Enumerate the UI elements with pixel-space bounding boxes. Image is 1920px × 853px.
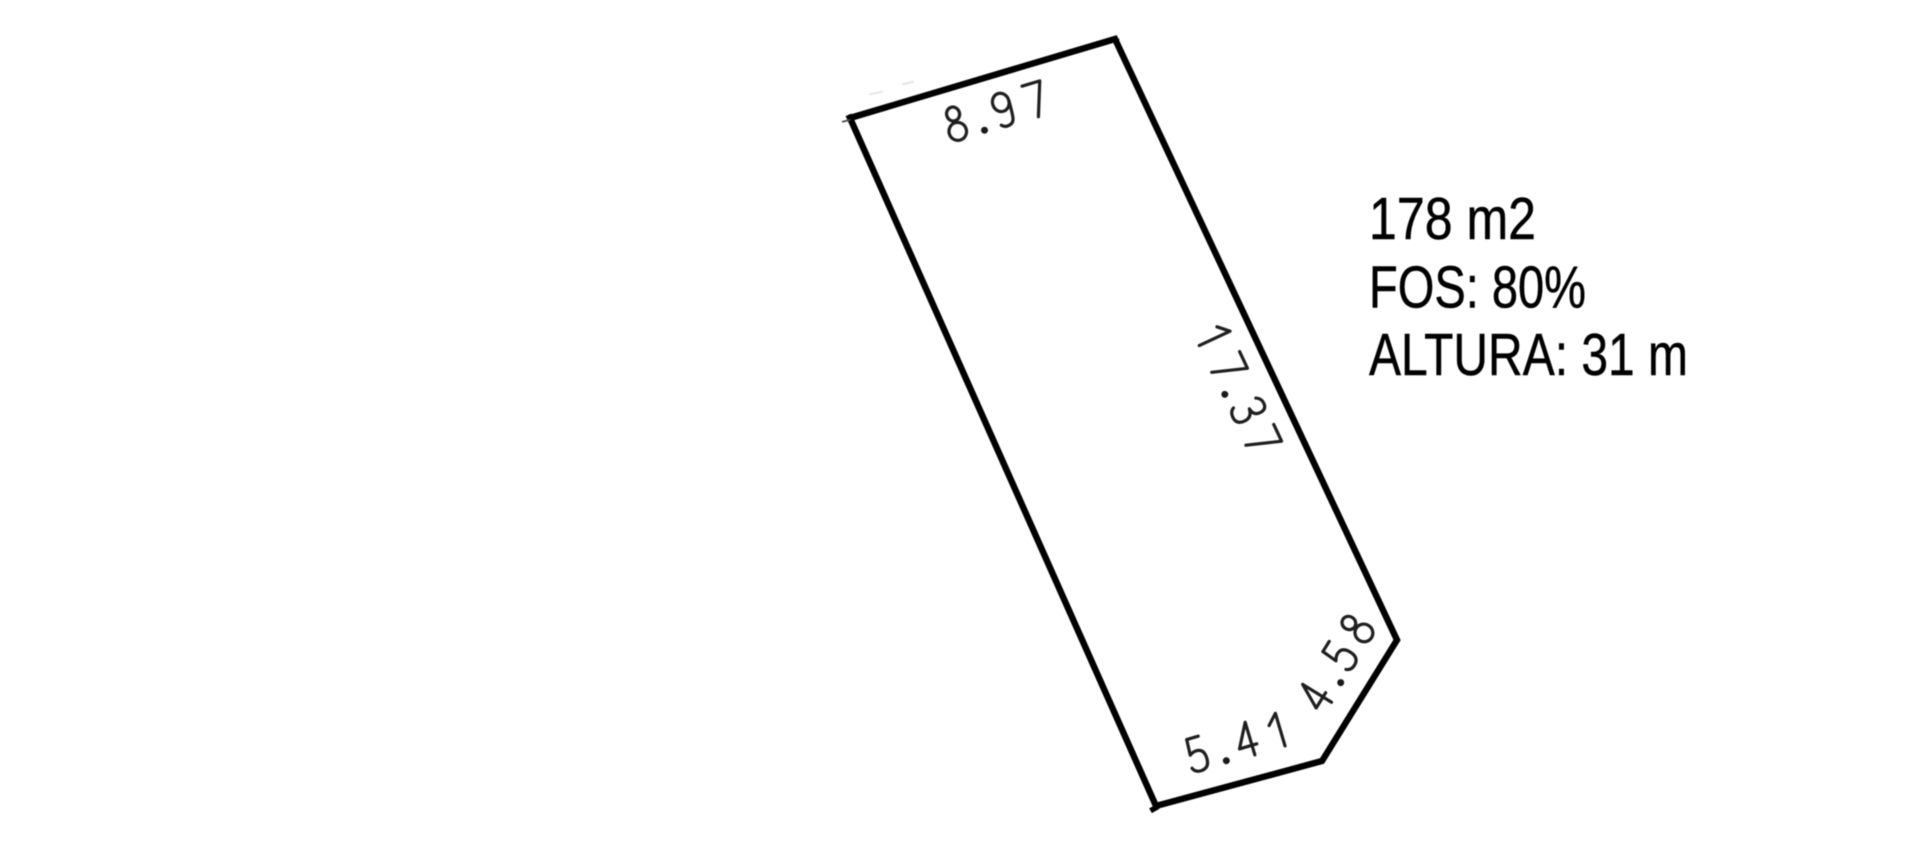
svg-text:FOS: 80%: FOS: 80% [1369,255,1586,321]
svg-text:ALTURA: 31 m: ALTURA: 31 m [1369,322,1688,388]
svg-text:178 m2: 178 m2 [1369,186,1536,252]
